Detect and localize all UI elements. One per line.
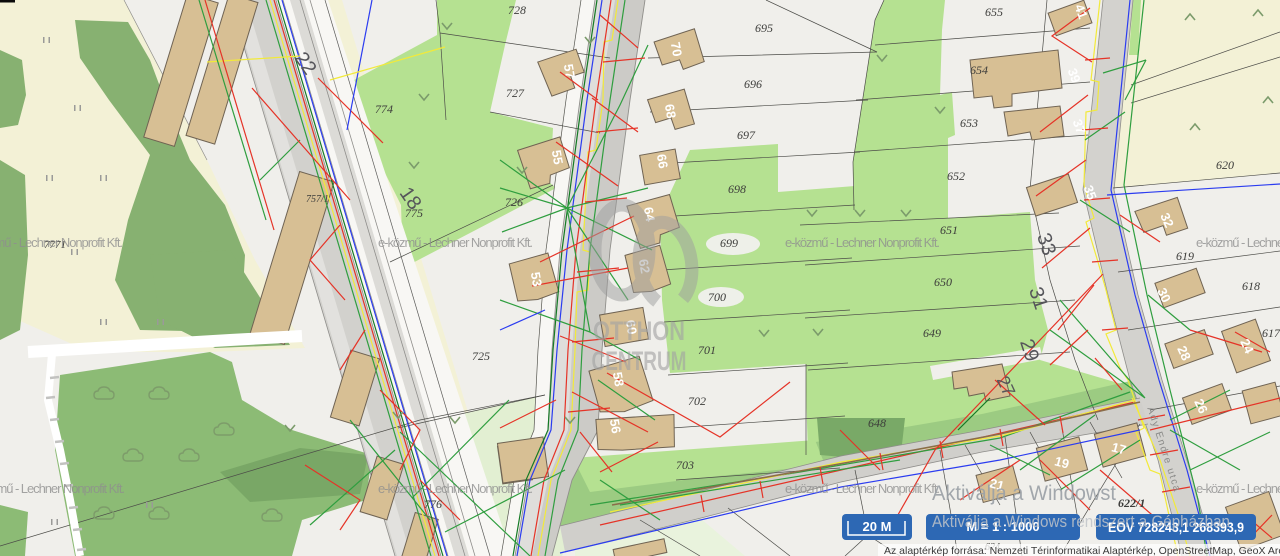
svg-text:OTTHON: OTTHON (593, 316, 685, 346)
svg-text:698: 698 (728, 182, 746, 196)
svg-text:725: 725 (472, 349, 490, 363)
svg-text:68: 68 (662, 103, 679, 120)
svg-text:Aktiválja a Windowst: Aktiválja a Windowst (932, 482, 1116, 505)
svg-text:e-közmű - Lechner Nonprofit Kf: e-közmű - Lechner Nonprofit Kft. (1196, 235, 1280, 250)
svg-text:620: 620 (1216, 158, 1234, 172)
svg-text:728: 728 (508, 3, 526, 17)
svg-text:e-közmű - Lechner Nonprofit Kf: e-közmű - Lechner Nonprofit Kft. (0, 481, 125, 496)
svg-text:e-közmű - Lechner Nonprofit Kf: e-közmű - Lechner Nonprofit Kft. (0, 235, 123, 250)
svg-text:695: 695 (755, 21, 773, 35)
svg-text:774: 774 (375, 102, 393, 116)
svg-text:703: 703 (676, 458, 694, 472)
svg-text:618: 618 (1242, 279, 1260, 293)
svg-text:701: 701 (698, 343, 716, 357)
svg-text:55: 55 (549, 149, 566, 166)
svg-text:Aktiválja a Windows rendszert: Aktiválja a Windows rendszert a Gépházba… (932, 512, 1230, 531)
svg-text:622/1: 622/1 (1118, 496, 1145, 510)
svg-text:697: 697 (737, 128, 756, 142)
svg-text:619: 619 (1176, 249, 1194, 263)
svg-text:57: 57 (561, 63, 578, 80)
svg-text:652: 652 (947, 169, 965, 183)
svg-text:648: 648 (868, 416, 886, 430)
svg-text:651: 651 (940, 223, 958, 237)
svg-text:776: 776 (424, 497, 442, 511)
svg-text:e-közmű - Lechner Nonprofit Kf: e-közmű - Lechner Nonprofit Kft. (378, 481, 533, 496)
svg-text:70: 70 (668, 41, 685, 58)
svg-text:653: 653 (960, 116, 978, 130)
svg-text:757/1: 757/1 (306, 194, 329, 205)
svg-text:702: 702 (688, 394, 706, 408)
svg-text:56: 56 (607, 418, 624, 435)
svg-text:66: 66 (654, 153, 671, 170)
svg-text:CENTRUM: CENTRUM (592, 346, 687, 376)
svg-text:649: 649 (923, 326, 941, 340)
svg-text:655: 655 (985, 5, 1003, 19)
svg-text:699: 699 (720, 236, 738, 250)
svg-text:e-közmű - Lechner Nonprofit Kf: e-közmű - Lechner Nonprofit Kft. (378, 235, 533, 250)
svg-text:696: 696 (744, 77, 762, 91)
svg-text:53: 53 (528, 271, 545, 288)
svg-text:650: 650 (934, 275, 952, 289)
svg-text:700: 700 (708, 290, 726, 304)
svg-text:e-közmű - Lechner Nonprofit Kf: e-közmű - Lechner Nonprofit Kft. (785, 481, 940, 496)
svg-text:e-közmű - Lechner Nonprofit Kf: e-közmű - Lechner Nonprofit Kft. (1196, 481, 1280, 496)
svg-text:617: 617 (1262, 326, 1280, 340)
svg-text:Az alaptérkép forrása: Nemzeti: Az alaptérkép forrása: Nemzeti Térinform… (884, 545, 1280, 556)
svg-text:726: 726 (505, 195, 523, 209)
svg-text:654: 654 (970, 63, 988, 77)
svg-text:e-közmű - Lechner Nonprofit Kf: e-közmű - Lechner Nonprofit Kft. (785, 235, 940, 250)
svg-text:727: 727 (506, 86, 525, 100)
svg-text:20 M: 20 M (863, 519, 892, 534)
